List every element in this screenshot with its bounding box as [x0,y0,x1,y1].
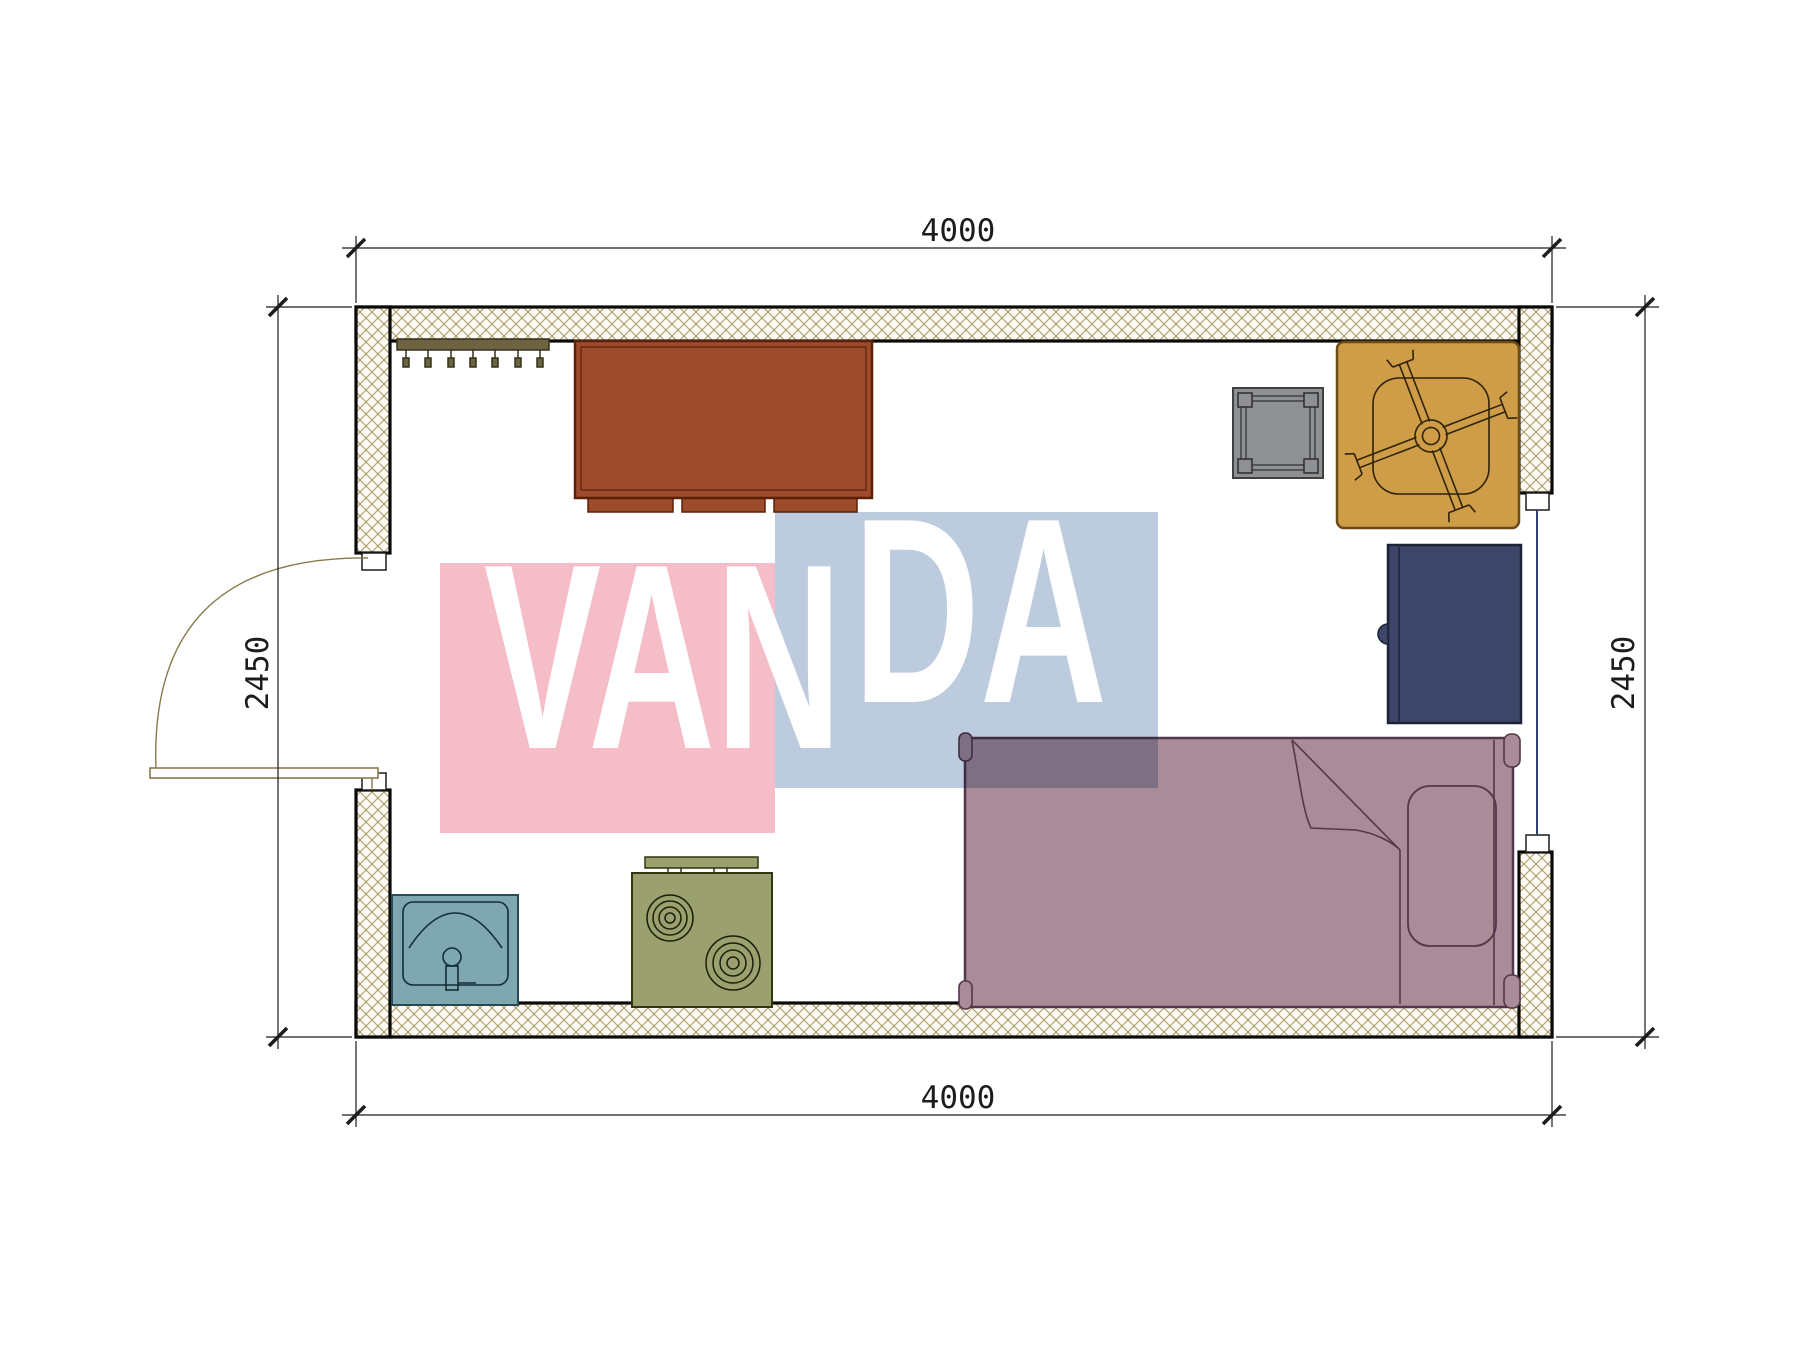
dimension-label-right: 2450 [1606,636,1642,711]
wardrobe-body [575,341,872,498]
wardrobe [575,341,872,512]
stove [632,857,772,1007]
side-table [1233,388,1323,478]
chair-mat-rect [1337,342,1519,528]
nightstand [1378,545,1521,723]
dimension-label-left: 2450 [240,636,276,711]
coat-rack-hooks [403,350,543,367]
nightstand-handle [1378,624,1388,644]
wall-right-lower [1519,852,1552,1037]
window [1526,493,1549,852]
watermark-text-van: VAN [484,509,843,804]
door-leaf [150,768,378,778]
dimension-label-bottom: 4000 [921,1080,996,1116]
window-frame-bottom [1526,835,1549,852]
coat-rack [397,339,549,367]
coat-rack-bar [397,339,549,350]
stove-backsplash [645,857,758,868]
sink [392,895,518,1005]
wall-top [356,307,1552,341]
watermark-text-da: DA [853,463,1107,758]
wall-left-lower [356,790,390,1037]
chair-mat [1319,324,1544,549]
floor-plan-canvas: 4000 4000 2450 2450 VAN DA [0,0,1800,1350]
window-frame-top [1526,493,1549,510]
nightstand-body [1388,545,1521,723]
wall-left-upper [356,307,390,553]
door-frame-top [362,553,386,570]
sink-body [392,895,518,1005]
watermark: VAN DA [440,463,1158,833]
dimension-label-top: 4000 [921,213,996,249]
stove-body [632,873,772,1007]
dimension-left [266,295,352,1049]
wall-right-upper [1519,307,1552,493]
